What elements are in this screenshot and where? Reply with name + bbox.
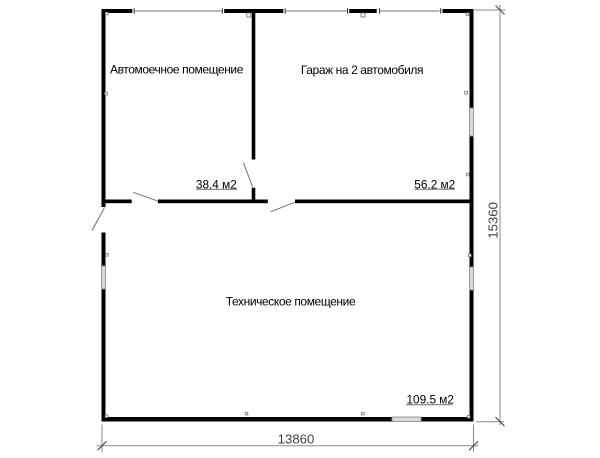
svg-text:Техническое помещение: Техническое помещение	[226, 295, 356, 309]
svg-text:13860: 13860	[278, 432, 315, 447]
svg-text:15360: 15360	[486, 202, 501, 239]
svg-text:Гараж на 2 автомобиля: Гараж на 2 автомобиля	[301, 63, 423, 77]
svg-text:Автомоечное помещение: Автомоечное помещение	[110, 63, 244, 77]
